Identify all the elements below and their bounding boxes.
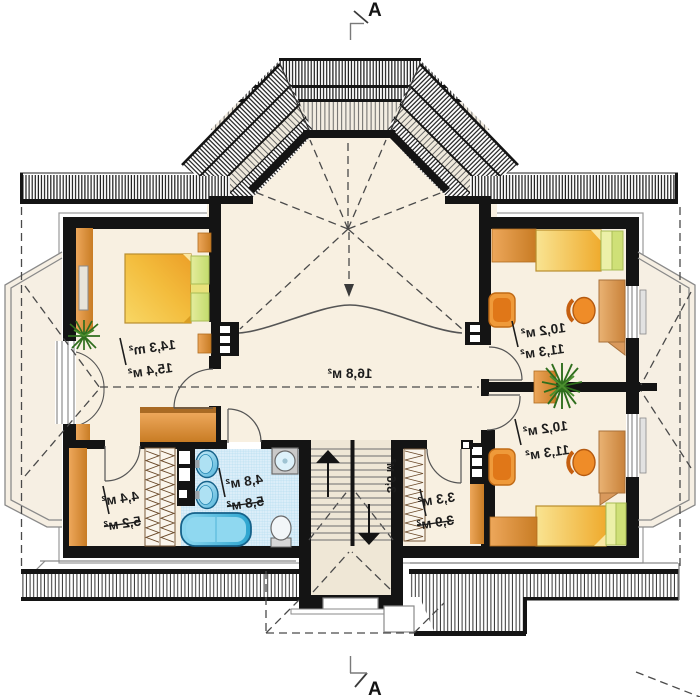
svg-text:16,8 м²: 16,8 м² <box>327 366 372 381</box>
svg-text:3,6 м²: 3,6 м² <box>384 459 398 493</box>
svg-text:A: A <box>368 679 382 697</box>
svg-text:A: A <box>368 0 382 21</box>
